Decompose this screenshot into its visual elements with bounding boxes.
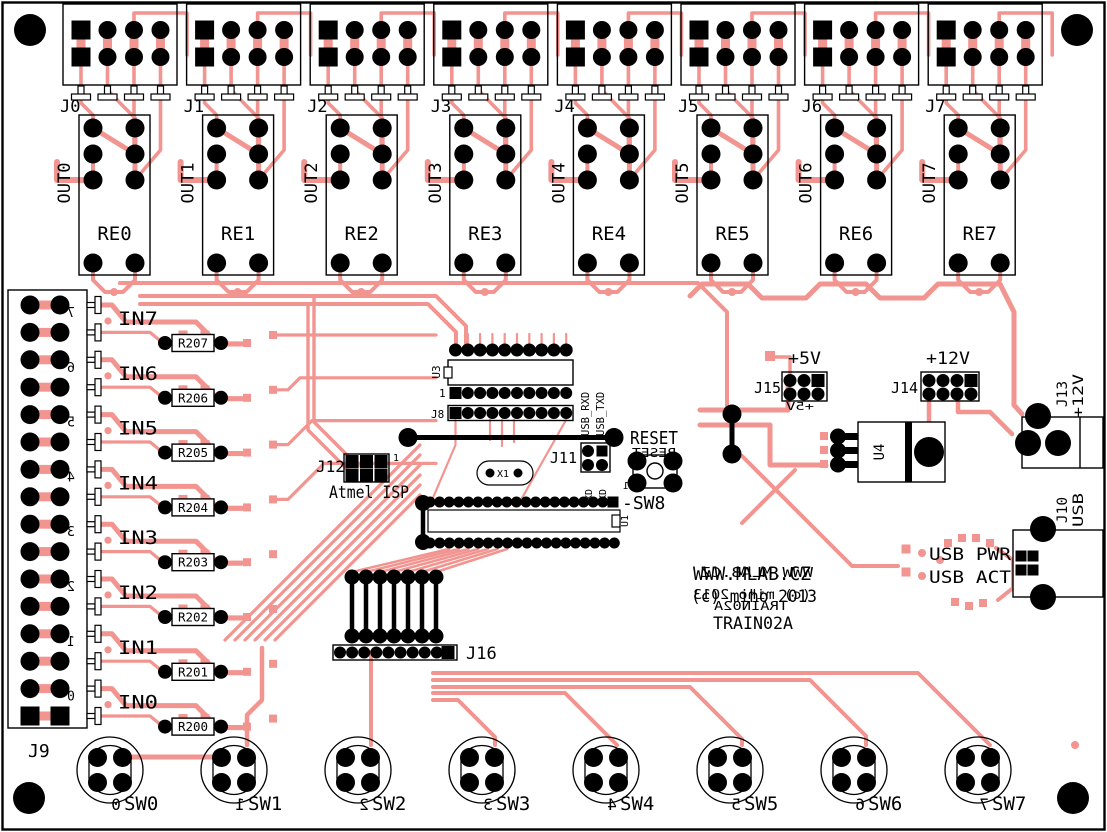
pad [485, 748, 504, 767]
pcb-screenshot: 76543210RESET1+5V01234567WWW.MLAB.CZ(c) … [0, 0, 1107, 832]
pad [733, 748, 752, 767]
pad [84, 145, 103, 164]
outline [248, 94, 267, 100]
pad [361, 748, 380, 767]
relay-label: RE1 [221, 223, 255, 245]
power-label: +12V [926, 349, 970, 369]
switch-number-mirror: 0 [111, 795, 121, 814]
outline [448, 360, 573, 385]
mounting-hole [1061, 14, 1093, 46]
output-label: OUT0 [55, 163, 75, 204]
pad [21, 679, 40, 698]
pad [158, 555, 172, 569]
pad [523, 387, 535, 399]
pad [126, 119, 145, 138]
pad [570, 538, 581, 549]
pad [523, 407, 535, 419]
outline [87, 577, 95, 582]
outline [87, 549, 95, 554]
pad [784, 374, 797, 387]
pad [840, 48, 858, 66]
pad [372, 48, 390, 66]
pad [214, 665, 228, 679]
outline [151, 94, 170, 100]
regulator-U4: U4 [830, 422, 945, 482]
pad [473, 538, 484, 549]
pad [21, 378, 40, 397]
switch-number-mirror: 1 [235, 795, 245, 814]
pad [723, 445, 742, 464]
via [918, 572, 926, 580]
trace [432, 420, 456, 500]
pad [1017, 48, 1035, 66]
pad [605, 428, 624, 447]
pad [619, 48, 637, 66]
mounting-hole [1057, 782, 1089, 814]
pad [951, 388, 964, 401]
smd-pad [243, 339, 251, 347]
pad [893, 48, 911, 66]
smd-pad [269, 660, 277, 668]
pad [125, 21, 143, 39]
outline [428, 510, 620, 532]
pad [158, 500, 172, 514]
resistor-label: R202 [178, 610, 208, 625]
pad [559, 497, 570, 508]
pad [597, 497, 608, 508]
pad [951, 374, 964, 387]
header-label: J16 [466, 644, 497, 664]
header-J8: J8 [431, 406, 573, 422]
pad [596, 459, 608, 471]
smd-pad [765, 351, 775, 361]
pad [434, 538, 445, 549]
reset-label: RESET [630, 428, 678, 449]
pad [434, 497, 445, 508]
pad [1030, 584, 1056, 610]
smd-pad [820, 432, 828, 440]
pad [937, 388, 950, 401]
pad [981, 748, 1000, 767]
outline [95, 351, 101, 368]
pad-square [375, 455, 388, 468]
pad [429, 570, 444, 585]
smd-pad [243, 394, 251, 402]
outline [645, 94, 664, 100]
relay-label: RE7 [963, 223, 997, 245]
input-label: IN7 [118, 308, 158, 330]
resistor-label: R205 [178, 445, 208, 460]
header-J14-12v: +12VJ14 [891, 349, 979, 401]
pad [88, 773, 107, 792]
pad [825, 145, 844, 164]
pad-square [72, 48, 91, 67]
ic-label: U3 [430, 365, 443, 378]
pad [770, 21, 788, 39]
pad [460, 748, 479, 767]
output-label: OUT6 [797, 163, 817, 204]
outline [566, 94, 585, 100]
pad [51, 597, 70, 616]
outline [444, 367, 452, 378]
pad [991, 145, 1010, 164]
pad [158, 610, 172, 624]
input-label: IN4 [118, 472, 158, 494]
pad-square [195, 48, 214, 67]
pad [551, 538, 562, 549]
pad [462, 407, 474, 419]
smd-pad [902, 545, 911, 554]
pad [560, 407, 572, 419]
pad [521, 497, 532, 508]
mounting-hole [13, 782, 45, 814]
pad [522, 538, 533, 549]
pad [923, 374, 936, 387]
pad [702, 254, 721, 273]
outline [87, 604, 95, 609]
pad-square [1016, 565, 1027, 576]
pad [535, 344, 548, 357]
smd-pad [972, 534, 980, 542]
pad [589, 538, 600, 549]
pin1-label: 1 [393, 453, 399, 464]
via [481, 288, 489, 296]
pad-square [319, 48, 338, 67]
pad [346, 48, 364, 66]
pad [51, 487, 70, 506]
outline [95, 571, 101, 588]
trace [98, 661, 166, 672]
pad [249, 254, 268, 273]
pad [990, 21, 1008, 39]
pad [522, 48, 540, 66]
header-J15-5v: +5VJ15 [754, 349, 827, 401]
via [104, 646, 111, 653]
outline [87, 357, 95, 362]
pad [620, 171, 639, 190]
pad [99, 21, 117, 39]
header-label: J15 [754, 379, 781, 397]
trace [98, 497, 166, 508]
pad [51, 433, 70, 452]
pad [646, 21, 664, 39]
pad [331, 119, 350, 138]
pad [560, 344, 573, 357]
outline [495, 94, 514, 100]
pad [88, 748, 107, 767]
trace [742, 470, 795, 523]
pad [207, 119, 226, 138]
pad [578, 171, 597, 190]
outline [87, 714, 95, 719]
title-board-name: TRAIN02A [713, 614, 793, 634]
pad [867, 48, 885, 66]
pad [609, 748, 628, 767]
trace [98, 387, 166, 398]
pad [744, 119, 763, 138]
smd-pad [902, 568, 911, 577]
connector-label: J10 [1055, 497, 1071, 523]
pad [536, 407, 548, 419]
pad-square [965, 374, 978, 387]
pad [51, 624, 70, 643]
pad [249, 145, 268, 164]
smd-pad [965, 602, 973, 610]
pad [463, 538, 474, 549]
pad [708, 748, 727, 767]
pad [444, 538, 455, 549]
pad [214, 391, 228, 405]
smd-pad [820, 460, 828, 468]
jack-caption: +12V [1071, 374, 1087, 418]
pad [723, 405, 742, 424]
pad [237, 748, 256, 767]
outline [813, 94, 832, 100]
outline [98, 94, 117, 100]
input-row-IN1: IN1R201 [118, 637, 228, 681]
outline [619, 94, 638, 100]
via [234, 288, 242, 296]
pad [531, 538, 542, 549]
outline [893, 94, 912, 100]
pad [249, 171, 268, 190]
pad [214, 336, 228, 350]
pad [395, 647, 407, 659]
outline [1013, 530, 1103, 597]
pad [664, 474, 683, 493]
pad [512, 538, 523, 549]
pad [334, 647, 346, 659]
pad [454, 145, 473, 164]
pad [21, 350, 40, 369]
outline [937, 94, 956, 100]
pad [628, 474, 647, 493]
pad [125, 48, 143, 66]
switch-label: SW5 [744, 793, 778, 815]
pad [415, 495, 431, 511]
outline [769, 94, 788, 100]
pad-square [690, 21, 709, 40]
pad [991, 254, 1010, 273]
pad [569, 497, 580, 508]
pad [21, 405, 40, 424]
pad [744, 171, 763, 190]
pad [549, 497, 560, 508]
pad [540, 497, 551, 508]
pad-square [597, 446, 608, 457]
outline [990, 94, 1009, 100]
pad [609, 773, 628, 792]
outline [372, 94, 391, 100]
pad [949, 119, 968, 138]
via [104, 701, 111, 708]
input-row-IN7: IN7R207 [118, 308, 228, 352]
jack-J13-12v: J13+12V [1015, 374, 1103, 468]
outline [716, 94, 735, 100]
pad [382, 647, 394, 659]
pad [51, 460, 70, 479]
pad [346, 21, 364, 39]
pad [331, 171, 350, 190]
outline [95, 324, 101, 341]
pad [798, 388, 811, 401]
pad [702, 171, 721, 190]
pad [331, 254, 350, 273]
pad [578, 145, 597, 164]
header-label: J12 [316, 457, 345, 476]
pad [956, 773, 975, 792]
pad [462, 387, 474, 399]
pad [620, 145, 639, 164]
output-label: OUT5 [673, 163, 693, 204]
input-row-IN2: IN2R202 [118, 582, 228, 626]
input-label: IN3 [118, 527, 158, 549]
pad [867, 171, 886, 190]
pad [770, 48, 788, 66]
pad [469, 48, 487, 66]
pad [1015, 430, 1041, 456]
pad [620, 119, 639, 138]
crystal-X1: X1 [477, 461, 533, 485]
outline [95, 434, 101, 451]
pad [21, 487, 40, 506]
outline [72, 94, 91, 100]
switch-label: SW0 [124, 793, 158, 815]
outline [275, 94, 294, 100]
pad [453, 497, 464, 508]
pad [1025, 403, 1051, 429]
input-label: IN6 [118, 363, 158, 385]
header-label: J14 [891, 379, 918, 397]
pad [499, 407, 511, 419]
pad [485, 773, 504, 792]
pad-square [442, 48, 461, 67]
input-row-IN3: IN3R203 [118, 527, 228, 571]
pad [743, 21, 761, 39]
pad [370, 647, 382, 659]
pad-square [813, 48, 832, 67]
relay-label: RE6 [839, 223, 873, 245]
pad [84, 254, 103, 273]
mounting-hole [14, 14, 46, 46]
pad [158, 446, 172, 460]
pad-square [690, 48, 709, 67]
pad [580, 538, 591, 549]
outline [963, 94, 982, 100]
outline [690, 94, 709, 100]
connector-J10-usb: J10USB [1013, 493, 1103, 610]
title-copyright: (c) miho 2013 [691, 587, 817, 607]
pad [51, 652, 70, 671]
trace [98, 332, 166, 343]
outline [95, 406, 101, 423]
switch-label: SW7 [992, 793, 1026, 815]
pad [646, 48, 664, 66]
pad [832, 748, 851, 767]
pad [893, 21, 911, 39]
via [104, 537, 111, 544]
pad-square [442, 21, 461, 40]
outline [95, 708, 101, 725]
header-label: J8 [431, 408, 444, 421]
pad [387, 570, 402, 585]
pad [582, 445, 594, 457]
pad [547, 344, 560, 357]
pad [523, 344, 536, 357]
pad [99, 48, 117, 66]
trace [433, 700, 495, 745]
pad [51, 542, 70, 561]
outline [95, 297, 101, 314]
switch-number-mirror: 2 [359, 795, 369, 814]
pad [511, 344, 524, 357]
outline [442, 94, 461, 100]
led-label: USB ACT [929, 568, 1011, 587]
pad [588, 497, 599, 508]
pad [620, 254, 639, 273]
pad [498, 344, 511, 357]
outline [743, 94, 762, 100]
via [104, 317, 111, 324]
pad [373, 254, 392, 273]
pad [51, 323, 70, 342]
pad-square [812, 374, 825, 387]
trace [98, 552, 166, 563]
outline [87, 659, 95, 664]
outline [398, 94, 417, 100]
pad [867, 145, 886, 164]
outline [1016, 94, 1035, 100]
pad [486, 469, 495, 478]
pad-square [450, 407, 462, 419]
pad-square [346, 469, 359, 482]
outline [195, 94, 214, 100]
pad [840, 21, 858, 39]
relay-label: RE2 [345, 223, 379, 245]
pad [473, 497, 484, 508]
pad [496, 254, 515, 273]
pad [152, 48, 170, 66]
via [918, 549, 926, 557]
smd-pad [243, 613, 251, 621]
via [104, 427, 111, 434]
trace [98, 606, 166, 617]
smd-pad [243, 668, 251, 676]
pad [158, 391, 172, 405]
pad [560, 387, 572, 399]
pad [449, 344, 462, 357]
pad [126, 171, 145, 190]
via [104, 591, 111, 598]
pad [126, 254, 145, 273]
header-label: J11 [550, 449, 577, 467]
pad [496, 145, 515, 164]
via [110, 288, 118, 296]
pad [593, 21, 611, 39]
outline [87, 467, 95, 472]
pad-square [360, 455, 373, 468]
ic-label: U4 [872, 444, 888, 461]
pad [214, 500, 228, 514]
header-J12-isp: J121Atmel ISP [316, 453, 409, 502]
pad [578, 119, 597, 138]
smd-pad [269, 715, 277, 723]
pad [21, 652, 40, 671]
pin1-label: 1 [439, 387, 446, 400]
pad [84, 171, 103, 190]
crystal-label: X1 [497, 469, 509, 480]
pad [415, 534, 431, 550]
